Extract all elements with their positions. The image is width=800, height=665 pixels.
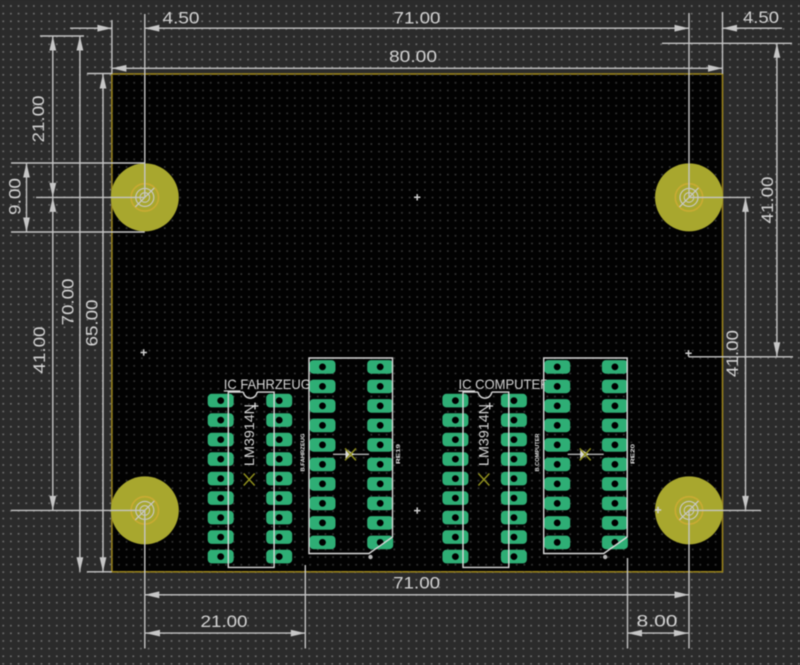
svg-text:4.50: 4.50 [163,9,200,28]
svg-text:41.00: 41.00 [758,177,777,224]
svg-text:71.00: 71.00 [394,9,441,28]
svg-text:9.00: 9.00 [6,178,25,215]
svg-text:71.00: 71.00 [393,574,440,593]
svg-text:21.00: 21.00 [201,612,248,631]
svg-text:21.00: 21.00 [29,96,48,143]
svg-text:4.50: 4.50 [743,8,779,27]
svg-text:IC COMPUTER: IC COMPUTER [459,376,550,392]
svg-text:65.00: 65.00 [83,300,102,347]
svg-text:41.00: 41.00 [723,330,742,377]
svg-text:B.FAHRZEUG: B.FAHRZEUG [301,434,307,472]
svg-text:LM3914N: LM3914N [476,404,492,466]
svg-text:B.COMPUTER: B.COMPUTER [535,433,541,471]
svg-text:IC FAHRZEUG: IC FAHRZEUG [224,376,311,392]
svg-text:RE20: RE20 [631,444,637,464]
svg-text:LM3914N: LM3914N [241,404,257,466]
svg-text:8.00: 8.00 [637,612,678,631]
svg-text:RE19: RE19 [396,444,402,464]
svg-text:80.00: 80.00 [389,47,437,66]
svg-text:41.00: 41.00 [30,327,49,374]
svg-text:70.00: 70.00 [59,279,78,326]
